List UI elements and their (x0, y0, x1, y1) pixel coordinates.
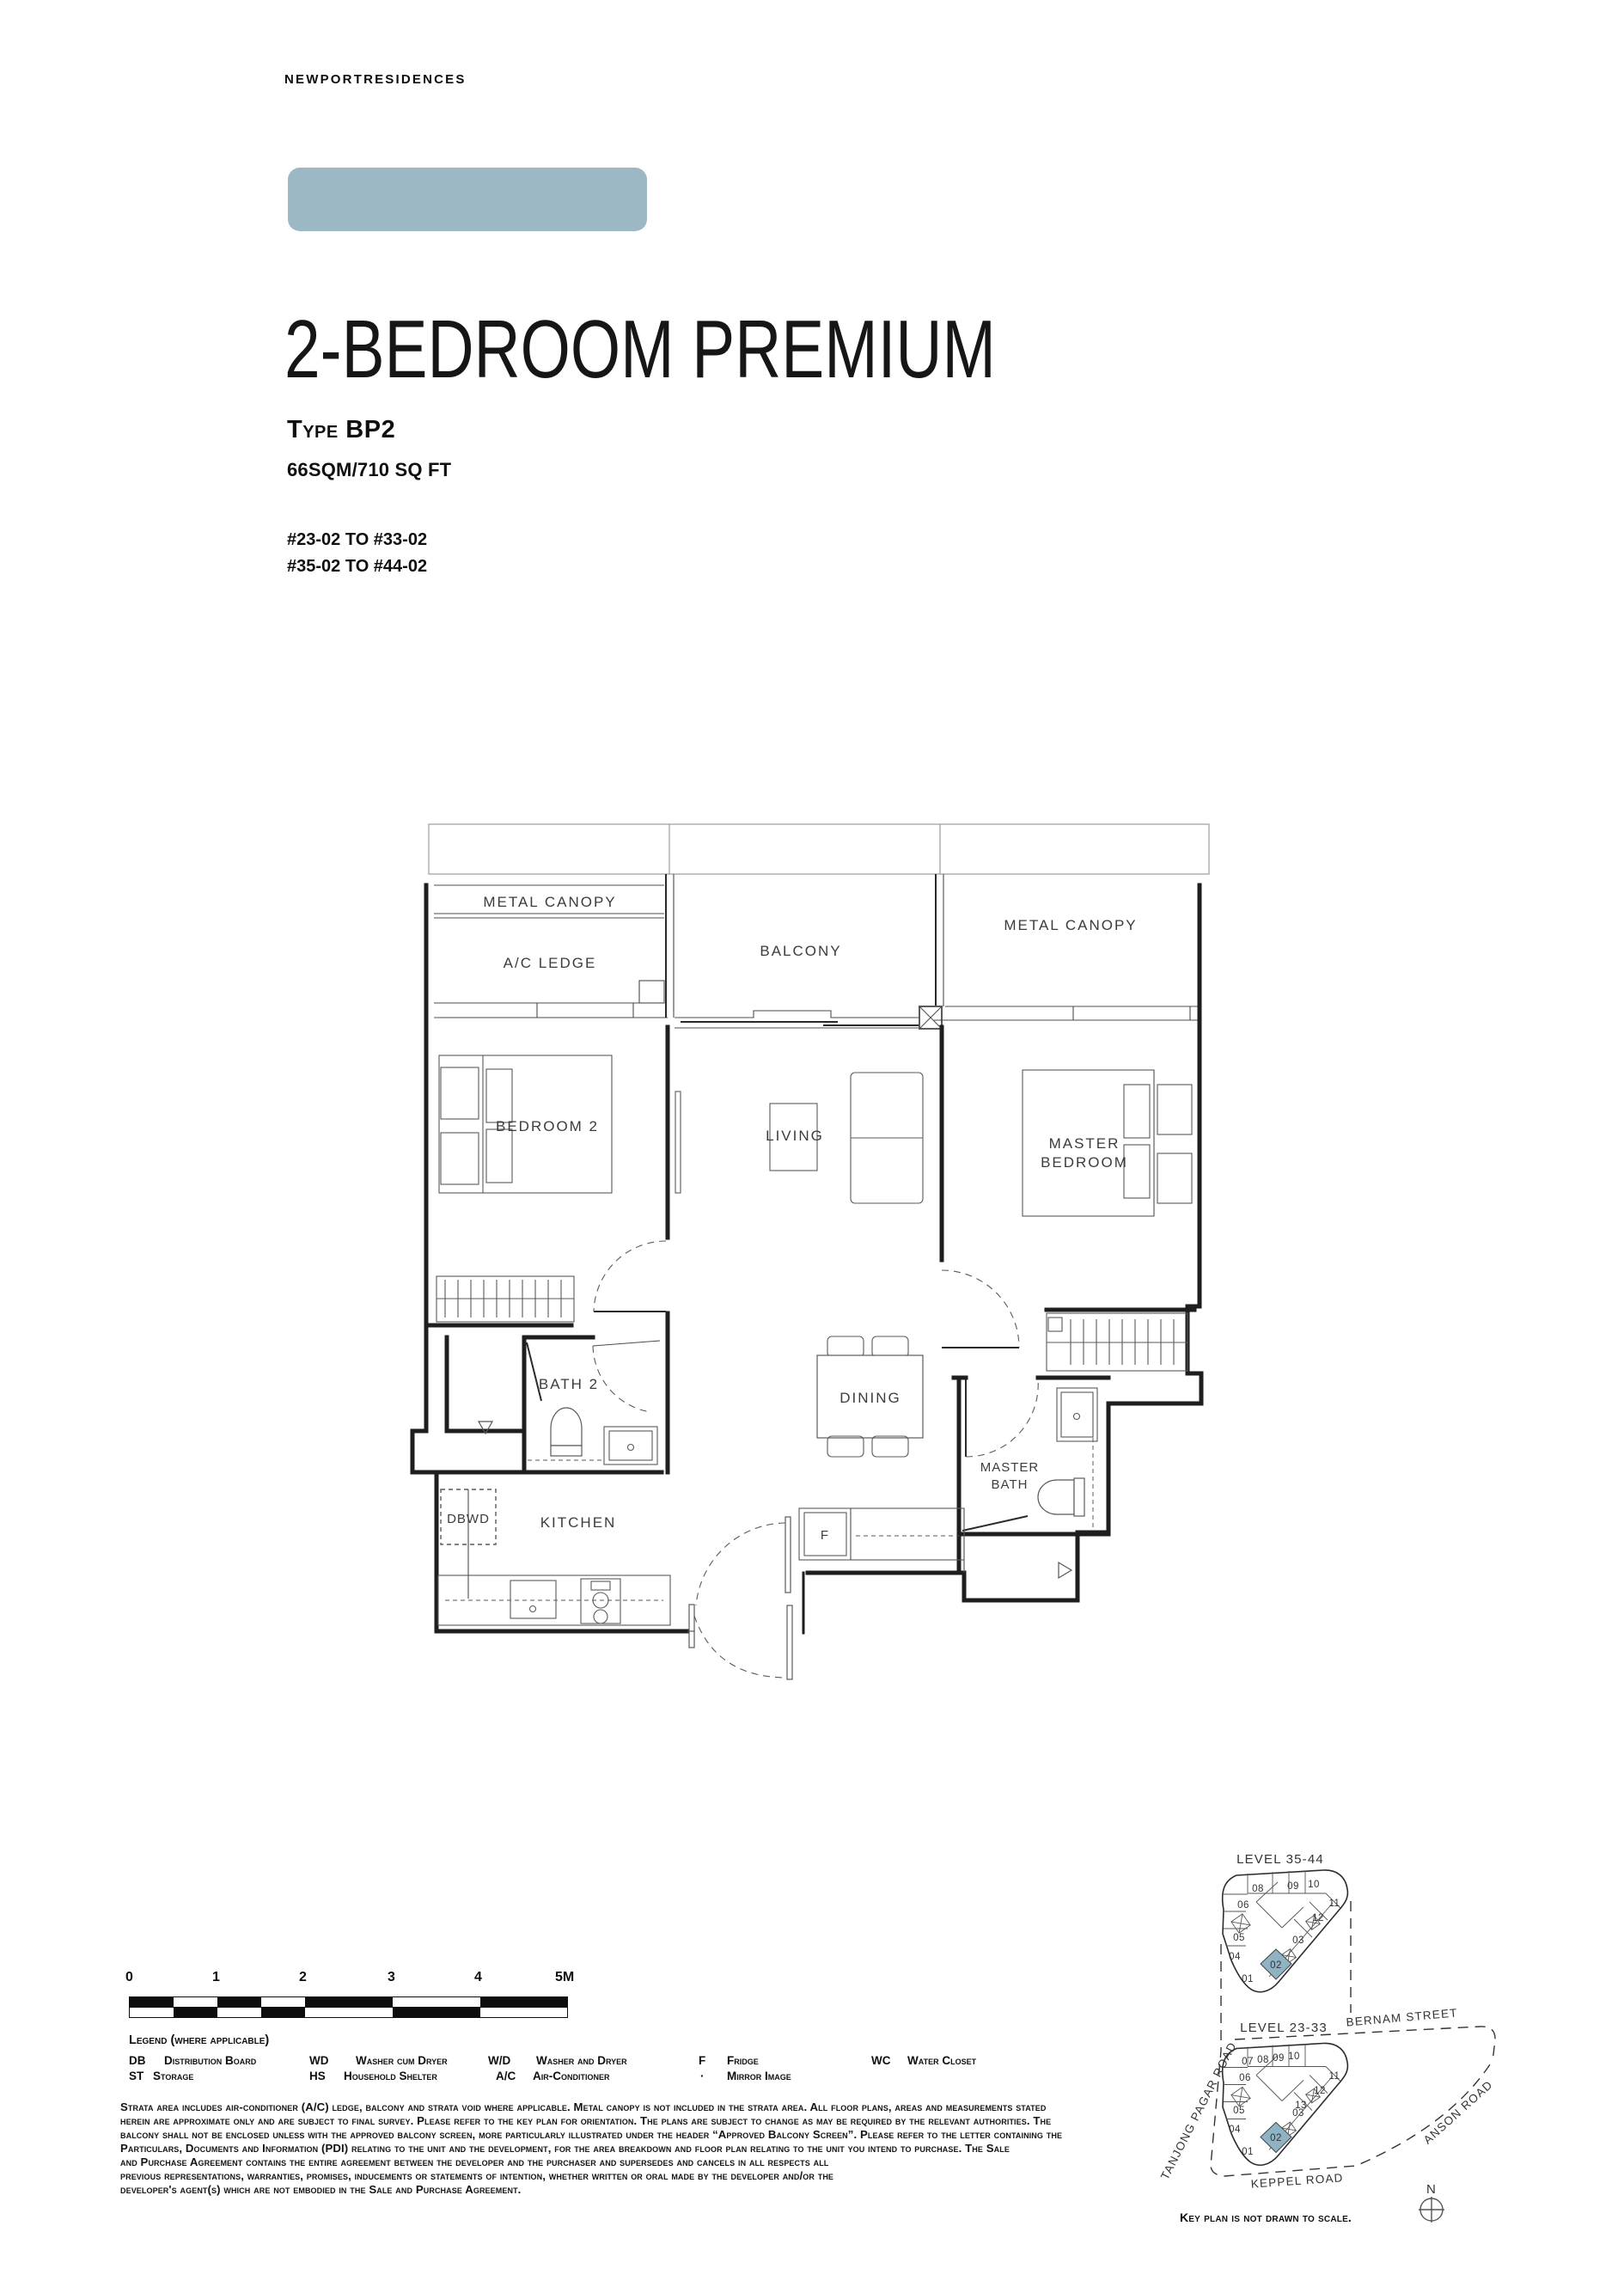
unit-number: 12 (1314, 2086, 1326, 2096)
stove (581, 1579, 620, 1623)
disclaimer-line: Strata area includes air-conditioner (A/… (120, 2100, 1046, 2113)
unit-number: 09 (1287, 1881, 1299, 1892)
street-anson: ANSON ROAD (1421, 2078, 1495, 2147)
legend-label: Water Closet (907, 2054, 976, 2067)
disclaimer-line: and Purchase Agreement contains the enti… (120, 2155, 828, 2168)
legend-abbr: W/D (488, 2054, 510, 2067)
label-bedroom2: BEDROOM 2 (496, 1118, 599, 1134)
label-master-bath-1: MASTER (980, 1460, 1040, 1475)
unit-number: 08 (1257, 2055, 1269, 2065)
unit-number: 05 (1233, 2106, 1245, 2116)
unit-number: 06 (1239, 2073, 1251, 2083)
label-balcony: BALCONY (760, 943, 841, 959)
legend-label: Household Shelter (344, 2070, 437, 2082)
unit-number: 10 (1288, 2051, 1300, 2062)
floor-trap-icon-2 (1059, 1562, 1071, 1578)
stack-range-1: #23-02 TO #33-02 (287, 530, 427, 550)
label-fridge: F (821, 1528, 829, 1543)
unit-number: 04 (1229, 2125, 1241, 2135)
street-bernam: BERNAM STREET (1346, 2006, 1458, 2028)
unit-number: 07 (1242, 2057, 1254, 2067)
legend-label: Air-Conditioner (533, 2070, 610, 2082)
legend-abbr: F (699, 2054, 705, 2067)
street-keppel: KEPPEL ROAD (1250, 2171, 1344, 2190)
legend-abbr: A/C (496, 2070, 516, 2082)
scale-bar-box (129, 1996, 568, 2018)
legend-title: Legend (where applicable) (129, 2033, 269, 2047)
legend-abbr: WC (871, 2054, 891, 2067)
page-title: 2-BEDROOM PREMIUM (284, 307, 996, 394)
unit-number: 04 (1229, 1952, 1241, 1962)
unit-number: 08 (1252, 1884, 1264, 1894)
unit-number: 11 (1329, 1899, 1340, 1909)
roof-outline (429, 824, 1209, 874)
legend-label: Storage (153, 2070, 193, 2082)
disclaimer-line: developer's agent(s) which are not embod… (120, 2183, 521, 2196)
label-master-bedroom-2: BEDROOM (1041, 1154, 1128, 1171)
unit-number: 01 (1242, 1974, 1254, 1984)
disclaimer-line: Particulars, Documents and Information (… (120, 2142, 1010, 2155)
legend-abbr: DB (129, 2054, 146, 2067)
brochure-page: NEWPORTRESIDENCES 2-BEDROOM PREMIUM Type… (0, 0, 1624, 2293)
unit-area-label: 66SQM/710 SQ FT (287, 459, 451, 481)
unit-number: 03 (1292, 1935, 1304, 1946)
disclaimer-line: herein are approximate only and are subj… (120, 2114, 1051, 2127)
keyplan-note: Key plan is not drawn to scale. (1180, 2210, 1352, 2224)
legend-abbr: ST (129, 2070, 143, 2082)
bedroom2-wardrobe (437, 1276, 574, 1322)
scale-tick: 2 (299, 1970, 307, 1985)
unit-number: 05 (1233, 1933, 1245, 1943)
scale-tick: 0 (125, 1970, 133, 1985)
label-bath2: BATH 2 (539, 1376, 599, 1392)
scale-tick: 1 (212, 1970, 220, 1985)
legend-label: Fridge (727, 2054, 759, 2067)
master-wardrobe (1047, 1313, 1187, 1371)
legend-label: Washer cum Dryer (356, 2054, 448, 2067)
unit-number: 09 (1273, 2053, 1285, 2064)
scale-tick: 5M (555, 1970, 574, 1985)
scale-tick: 4 (474, 1970, 482, 1985)
unit-number-highlight: 02 (1270, 1960, 1282, 1971)
label-metal-canopy-left: METAL CANOPY (483, 894, 616, 910)
legend-label: Washer and Dryer (536, 2054, 627, 2067)
floor-plan: METAL CANOPY A/C LEDGE BALCONY METAL CAN… (378, 782, 1263, 1702)
brand-logo: NEWPORTRESIDENCES (284, 72, 467, 87)
unit-number: 12 (1312, 1913, 1324, 1923)
disclaimer-line: balcony shall not be enclosed unless wit… (120, 2128, 1062, 2141)
unit-number-highlight: 02 (1270, 2133, 1282, 2143)
accent-bar (288, 168, 647, 231)
label-metal-canopy-right: METAL CANOPY (1004, 917, 1137, 933)
unit-type-label: Type BP2 (287, 416, 395, 444)
key-plan: LEVEL 35-44 08 09 10 06 11 12 05 03 04 0… (1156, 1839, 1525, 2243)
legend-label: Distribution Board (164, 2054, 256, 2067)
unit-number: 06 (1237, 1900, 1249, 1911)
scale-tick: 3 (388, 1970, 395, 1985)
legend-abbr: · (700, 2070, 705, 2082)
label-living: LIVING (766, 1128, 824, 1144)
keyplan-lower-title: LEVEL 23-33 (1240, 2021, 1328, 2035)
legend-abbr: HS (309, 2070, 326, 2082)
north-compass-icon: N (1419, 2182, 1444, 2223)
legend-abbr: WD (309, 2054, 329, 2067)
label-kitchen: KITCHEN (540, 1514, 617, 1531)
label-master-bath-2: BATH (992, 1477, 1029, 1492)
label-ac-ledge: A/C LEDGE (504, 955, 597, 971)
unit-number: 01 (1242, 2147, 1254, 2157)
db-wd-box (441, 1489, 496, 1599)
legend-label: Mirror Image (727, 2070, 791, 2082)
svg-text:N: N (1426, 2182, 1437, 2197)
unit-number: 11 (1329, 2071, 1340, 2082)
label-dbwd: DBWD (447, 1512, 490, 1526)
keyplan-upper-title: LEVEL 35-44 (1236, 1852, 1324, 1867)
unit-number: 10 (1308, 1880, 1320, 1890)
label-master-bedroom-1: MASTER (1049, 1135, 1120, 1152)
label-dining: DINING (839, 1390, 901, 1406)
disclaimer-line: previous representations, warranties, pr… (120, 2169, 833, 2182)
unit-number: 03 (1292, 2108, 1304, 2119)
stack-range-2: #35-02 TO #44-02 (287, 557, 427, 577)
